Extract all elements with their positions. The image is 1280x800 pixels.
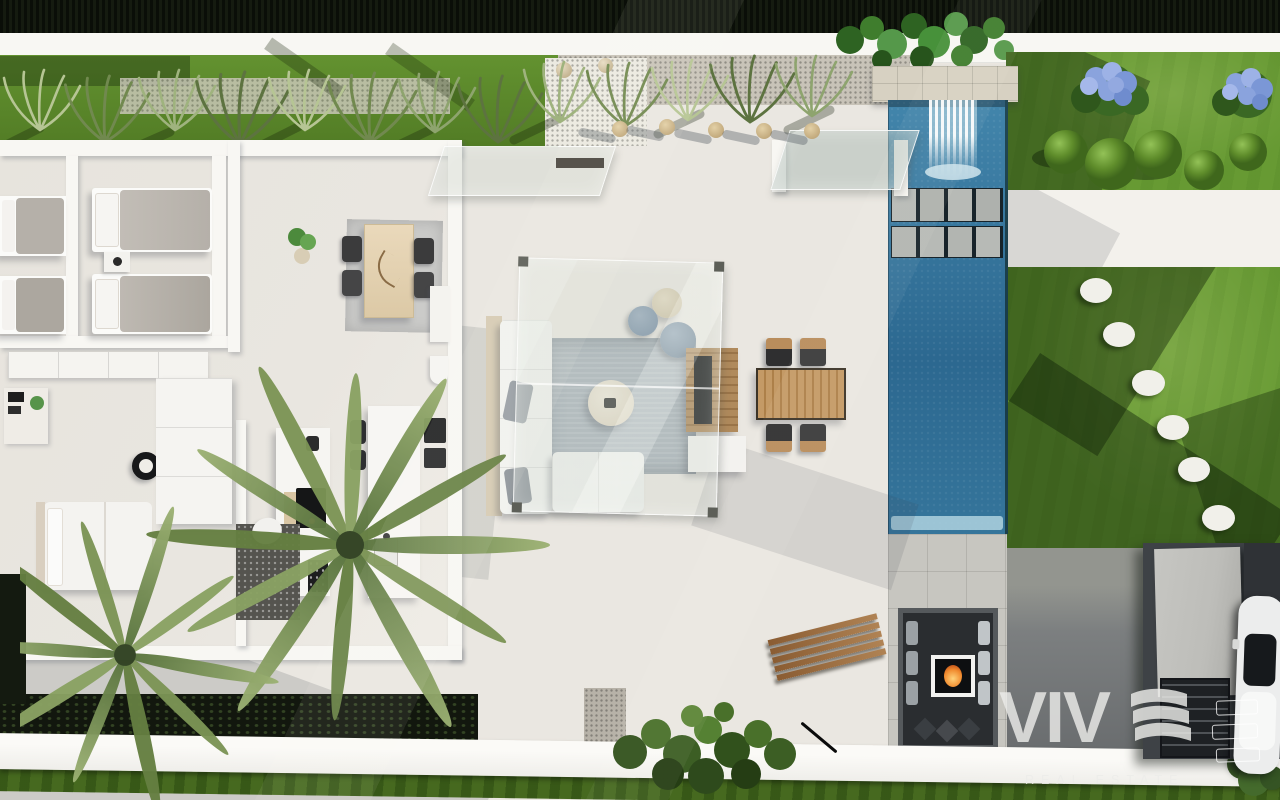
wall-bedroom-divider-1: [66, 156, 78, 342]
duvet: [120, 190, 210, 250]
logo-tagline-text: REAL ESTATE: [1025, 773, 1184, 787]
pit-cushion-right-1: [978, 621, 990, 645]
pergola-post-ne: [714, 261, 724, 271]
pillow: [2, 200, 15, 252]
pool-slat-1d: [976, 189, 1000, 221]
pool-slat-2c: [948, 227, 972, 257]
hydrangea-bushes: [1006, 52, 1280, 190]
carport-roof-panel: [1154, 547, 1244, 697]
patio-chair-3: [766, 424, 792, 452]
table-decor-branch: [370, 250, 408, 288]
bed-room1-a: [0, 196, 66, 256]
fire-pit-lounge: [898, 608, 998, 750]
pit-cushion-bottom-2: [936, 720, 959, 743]
duvet: [16, 278, 64, 332]
garden-tree: [596, 676, 810, 800]
entrance-canopy-glass: [428, 146, 616, 196]
pool-slat-2b: [920, 227, 944, 257]
wall-dining-west: [228, 140, 240, 352]
outdoor-fireplace: [931, 655, 975, 697]
wall-bedroom-divider-2: [212, 156, 226, 342]
plant-leaves: [300, 234, 316, 250]
dining-chair-3: [414, 238, 434, 264]
bathroom-shower: [430, 286, 450, 342]
bedside-lamp: [113, 257, 122, 266]
waterfall-foam: [925, 164, 981, 180]
palm-trees: [20, 350, 620, 800]
towel-roll-2: [659, 119, 675, 135]
stepping-stone-2: [1103, 322, 1135, 347]
aerial-villa-render: VIV REAL ESTATE: [0, 0, 1280, 800]
pit-cushion-bottom-3: [958, 718, 981, 741]
path-shadow-bar: [1006, 190, 1120, 267]
bed-room1-b: [0, 276, 66, 334]
stepping-stone-4: [1157, 415, 1189, 440]
waterfall-ledge: [872, 66, 1018, 102]
patio-chair-1: [766, 338, 792, 366]
entrance-door: [556, 158, 604, 168]
bed-room2-b: [92, 274, 212, 334]
stepping-stone-5: [1178, 457, 1210, 482]
pit-cushion-left-2: [906, 651, 918, 675]
pool-slat-1c: [948, 189, 972, 221]
garden-bed-top-right: [1006, 52, 1280, 190]
dining-table-indoor: [364, 224, 414, 318]
duvet: [120, 276, 210, 332]
logo-brand-text: VIV: [999, 678, 1111, 758]
car-mirror-left: [1232, 639, 1239, 649]
pit-cushion-left-3: [906, 681, 918, 705]
patio-chair-2: [800, 338, 826, 366]
garden-path: [1006, 190, 1280, 267]
duvet: [16, 198, 64, 254]
bed-room2-a: [92, 188, 212, 252]
dining-chair-1: [342, 236, 362, 262]
nightstand: [104, 252, 130, 272]
pergola-post-nw: [518, 256, 528, 266]
stepping-stone-3: [1132, 370, 1165, 396]
dining-chair-2: [342, 270, 362, 296]
plant-pot: [294, 248, 310, 264]
pillow: [95, 279, 119, 329]
pit-cushion-bottom-1: [914, 718, 937, 741]
towel-roll-4: [756, 123, 772, 139]
pit-cushion-right-2: [978, 651, 990, 675]
pool-slat-1b: [920, 189, 944, 221]
pool-slat-2a: [892, 227, 916, 257]
patio-dining-table: [756, 368, 846, 420]
stepping-stone-1: [1080, 278, 1112, 303]
pool-slat-2d: [976, 227, 1000, 257]
stepping-stone-6: [1202, 505, 1235, 531]
logo-e-wave-icon: [1131, 689, 1191, 741]
pillow: [2, 280, 15, 330]
lawn-main: [1006, 267, 1280, 548]
pit-cushion-left-1: [906, 621, 918, 645]
pergola-post-se: [708, 507, 718, 517]
potted-plant-indoor: [286, 228, 320, 270]
hedge-top: [0, 0, 1280, 33]
towel-roll-5: [804, 123, 820, 139]
wall-bedrooms-south: [0, 336, 228, 348]
patio-chair-4: [800, 424, 826, 452]
fireplace-flame: [944, 665, 962, 687]
pillow: [95, 193, 119, 247]
vive-watermark: VIV REAL ESTATE: [985, 678, 1265, 796]
